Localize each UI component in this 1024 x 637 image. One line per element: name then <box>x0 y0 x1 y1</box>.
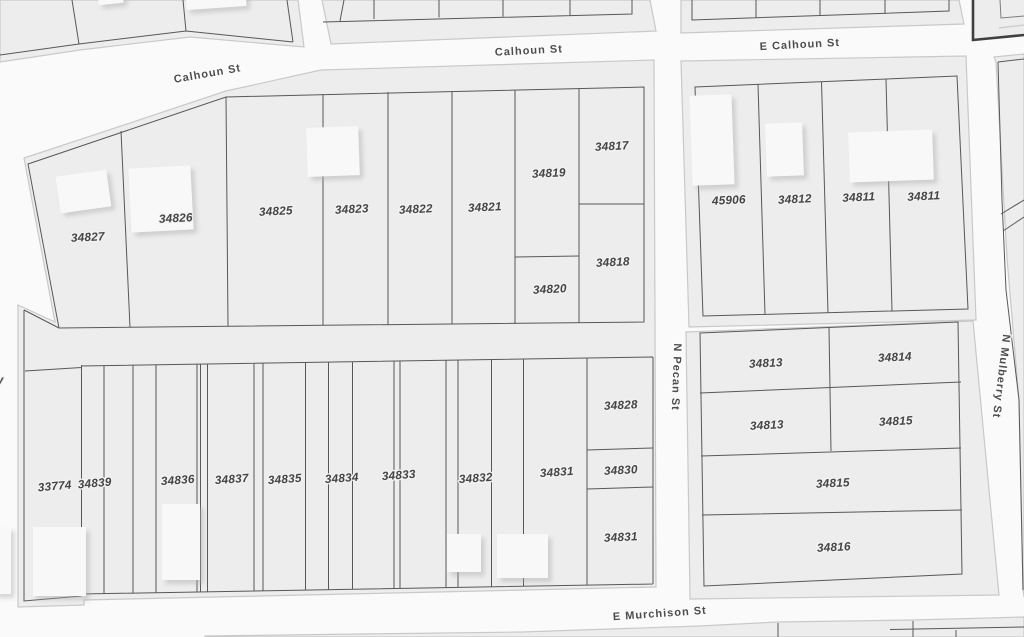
svg-text:34815: 34815 <box>879 413 914 429</box>
svg-text:34815: 34815 <box>816 475 851 491</box>
svg-text:34812: 34812 <box>778 191 813 207</box>
svg-text:34821: 34821 <box>468 199 502 215</box>
svg-text:34826: 34826 <box>159 210 194 226</box>
svg-text:34835: 34835 <box>267 471 302 487</box>
svg-text:34818: 34818 <box>596 254 631 270</box>
svg-text:34831: 34831 <box>539 464 574 480</box>
svg-text:34822: 34822 <box>399 201 434 217</box>
svg-text:34839: 34839 <box>77 475 112 492</box>
svg-text:34828: 34828 <box>604 397 639 413</box>
svg-text:34825: 34825 <box>259 203 294 219</box>
svg-text:34817: 34817 <box>595 138 631 154</box>
svg-text:45906: 45906 <box>711 192 747 208</box>
svg-text:34811: 34811 <box>907 188 941 204</box>
svg-text:34811: 34811 <box>842 189 876 205</box>
svg-text:34830: 34830 <box>604 462 639 478</box>
svg-text:34813: 34813 <box>749 355 784 371</box>
svg-text:34827: 34827 <box>71 229 107 245</box>
svg-text:N Pecan St: N Pecan St <box>669 343 683 411</box>
svg-text:34837: 34837 <box>214 471 250 487</box>
svg-text:34813: 34813 <box>750 417 785 433</box>
svg-text:34819: 34819 <box>532 165 567 181</box>
svg-text:34820: 34820 <box>533 281 568 297</box>
svg-text:34823: 34823 <box>335 201 370 217</box>
svg-text:33774: 33774 <box>37 478 72 495</box>
svg-text:34816: 34816 <box>817 539 852 555</box>
svg-text:34831: 34831 <box>604 529 638 545</box>
svg-text:34832: 34832 <box>458 470 493 486</box>
svg-text:34814: 34814 <box>878 349 913 365</box>
svg-text:34833: 34833 <box>381 467 416 483</box>
svg-text:34836: 34836 <box>160 472 195 488</box>
svg-text:34834: 34834 <box>324 470 359 486</box>
